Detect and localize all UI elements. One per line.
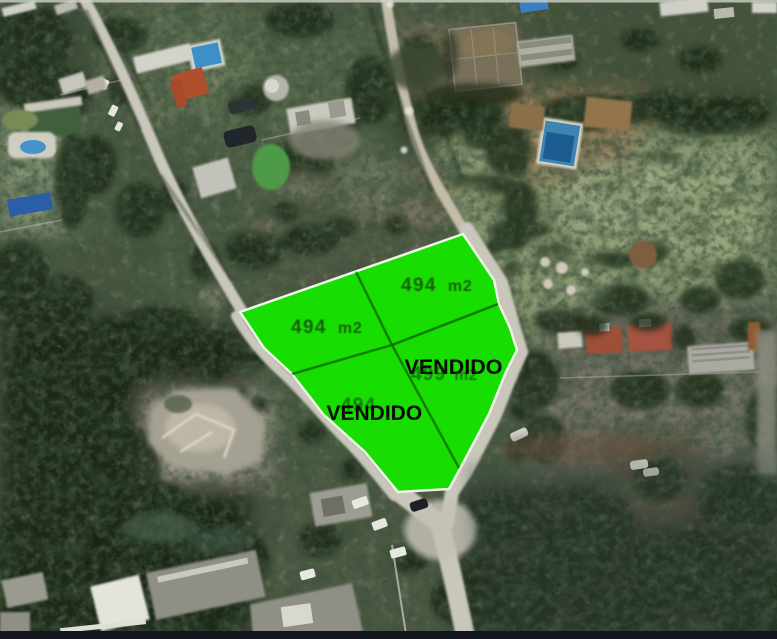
svg-text:VENDIDO: VENDIDO [405,355,503,379]
svg-text:VENDIDO: VENDIDO [327,402,423,425]
svg-text:494m2: 494m2 [401,275,473,296]
svg-text:494m2: 494m2 [291,317,363,338]
